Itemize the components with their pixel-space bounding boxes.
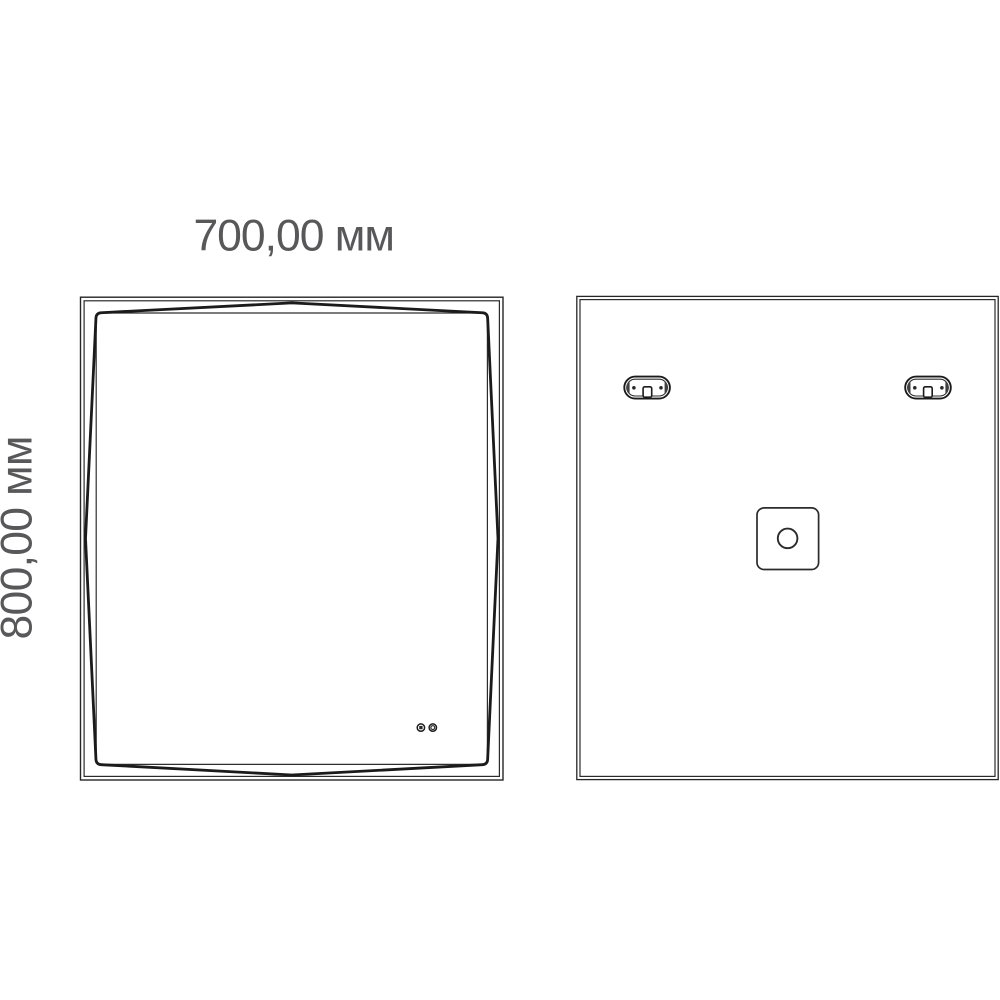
svg-text:800,00 мм: 800,00 мм	[0, 436, 42, 640]
svg-text:700,00 мм: 700,00 мм	[193, 212, 395, 261]
